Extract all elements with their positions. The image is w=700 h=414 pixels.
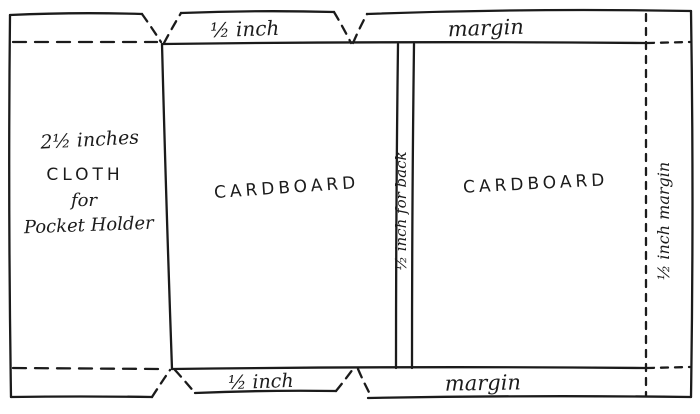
- left-panel-bottom-edge: [11, 397, 152, 398]
- top-half-inch-label: ½ inch: [210, 16, 280, 42]
- bottom-fold-line: [172, 367, 645, 369]
- cardboard-right-label: CARDBOARD: [463, 170, 609, 198]
- bottom-fold-right-dashed: [647, 367, 690, 368]
- cloth-size-label: 2½ inches: [39, 126, 140, 153]
- cardboard-left-label: CARDBOARD: [213, 173, 359, 203]
- right-margin-strip-label: ½ inch margin: [654, 162, 673, 280]
- pocket-holder-pattern-drawing: ½ inch margin 2½ inches CLOTH for Pocket…: [0, 0, 700, 414]
- right-strip-bottom-edge: [368, 396, 691, 398]
- left-border-line: [9, 15, 11, 397]
- bottom-notch-left-a: [152, 370, 170, 397]
- bottom-notch-right-a: [336, 369, 353, 391]
- cloth-label: CLOTH: [46, 165, 123, 185]
- spine-strip-right-line: [412, 44, 414, 368]
- left-panel-bottom-fold-dashed: [13, 368, 160, 369]
- middle-flap-top-edge: [181, 11, 334, 13]
- left-panel-top-edge: [10, 13, 142, 15]
- cloth-for-label: for: [69, 190, 98, 211]
- right-border-line: [691, 11, 693, 397]
- right-strip-top-edge: [367, 10, 691, 14]
- bottom-notch-right-b: [358, 369, 371, 396]
- top-margin-label: margin: [447, 15, 524, 42]
- top-notch-left-a: [142, 14, 161, 42]
- cloth-cardboard-boundary-line: [162, 44, 172, 369]
- bottom-margin-label: margin: [445, 370, 522, 395]
- bottom-half-inch-label: ½ inch: [228, 370, 294, 394]
- pattern-diagram: ½ inch margin 2½ inches CLOTH for Pocket…: [0, 0, 700, 414]
- top-notch-right-a: [334, 12, 351, 43]
- top-fold-line: [163, 42, 645, 44]
- bottom-notch-left-b: [175, 370, 195, 393]
- pocket-holder-label: Pocket Holder: [23, 213, 156, 239]
- spine-strip-label: ½ inch for back: [392, 151, 410, 270]
- top-fold-right-dashed: [647, 42, 690, 43]
- top-notch-right-b: [353, 14, 367, 43]
- top-notch-left-b: [164, 13, 181, 43]
